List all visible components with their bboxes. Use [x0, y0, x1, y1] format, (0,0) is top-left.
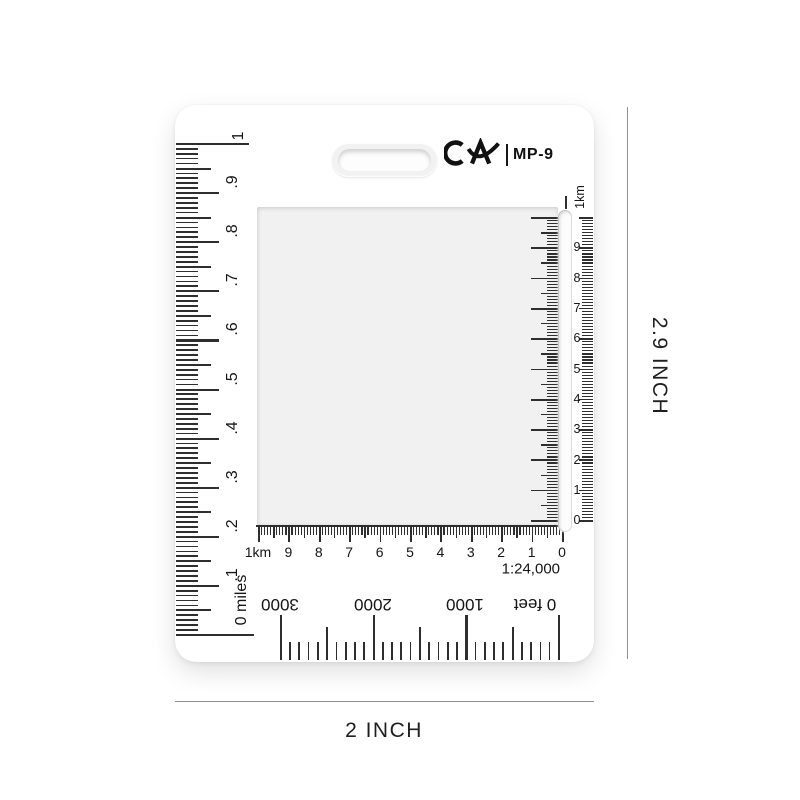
tick	[547, 275, 558, 276]
tick	[582, 272, 593, 273]
tick	[547, 372, 558, 373]
tick	[547, 332, 558, 333]
width-dimension-line	[175, 701, 594, 702]
tick	[547, 359, 558, 360]
tick	[547, 241, 558, 242]
tick	[531, 459, 558, 461]
tick	[582, 514, 593, 515]
tick	[582, 405, 593, 406]
tick	[547, 417, 558, 418]
ruler-label: 6	[574, 331, 581, 345]
tick	[547, 266, 558, 267]
tick	[547, 426, 558, 427]
tick	[541, 293, 558, 294]
tick	[579, 520, 593, 522]
tick	[547, 502, 558, 503]
tick	[547, 311, 558, 312]
tick	[547, 302, 558, 303]
tick	[531, 338, 558, 340]
tick	[579, 308, 593, 310]
tick	[541, 414, 558, 415]
tick	[547, 335, 558, 336]
tick	[582, 378, 593, 379]
tick	[582, 384, 593, 385]
tick	[547, 402, 558, 403]
tick	[582, 499, 593, 500]
tick	[541, 444, 558, 445]
tick	[582, 408, 593, 409]
tick	[579, 459, 593, 461]
tick	[547, 472, 558, 473]
height-dimension-label: 2.9 INCH	[647, 317, 671, 415]
tick	[547, 356, 558, 357]
tick	[582, 341, 593, 342]
tick	[582, 402, 593, 403]
tick	[582, 438, 593, 439]
tick	[582, 466, 593, 467]
tick	[582, 305, 593, 306]
tick	[531, 369, 558, 371]
tick	[547, 290, 558, 291]
tick	[579, 490, 593, 492]
tick	[547, 226, 558, 227]
tick	[582, 281, 593, 282]
tick	[547, 496, 558, 497]
tick	[582, 426, 593, 427]
tick	[579, 399, 593, 401]
tick	[582, 347, 593, 348]
tick	[547, 375, 558, 376]
tick	[547, 344, 558, 345]
tick	[582, 469, 593, 470]
tick	[582, 372, 593, 373]
tick	[547, 305, 558, 306]
tick	[582, 329, 593, 330]
tick	[547, 341, 558, 342]
tick	[582, 393, 593, 394]
ruler-label: 9	[574, 240, 581, 254]
tick	[582, 387, 593, 388]
ruler-label: 7	[574, 301, 581, 315]
tick	[582, 517, 593, 518]
tick	[547, 390, 558, 391]
tick	[582, 375, 593, 376]
tick	[547, 378, 558, 379]
tick	[541, 353, 558, 354]
tick	[547, 487, 558, 488]
tick	[582, 381, 593, 382]
tick	[547, 493, 558, 494]
ruler-label: 3	[574, 422, 581, 436]
tick	[582, 220, 593, 221]
tick	[579, 429, 593, 431]
tick	[582, 417, 593, 418]
tick	[579, 217, 593, 219]
tick	[582, 456, 593, 457]
tick	[582, 475, 593, 476]
tick	[547, 317, 558, 318]
tick	[547, 253, 558, 254]
tick	[582, 344, 593, 345]
width-dimension-label: 2 INCH	[345, 719, 423, 743]
tick	[547, 259, 558, 260]
tick	[547, 314, 558, 315]
tick	[547, 299, 558, 300]
tick	[531, 399, 558, 401]
tick	[579, 247, 593, 249]
tick	[582, 359, 593, 360]
tick	[582, 435, 593, 436]
tick	[582, 266, 593, 267]
tick	[582, 396, 593, 397]
tick	[582, 284, 593, 285]
tick	[547, 281, 558, 282]
tick	[547, 223, 558, 224]
tick	[582, 414, 593, 415]
tick	[541, 232, 558, 233]
tick	[547, 405, 558, 406]
height-dimension-line	[627, 107, 628, 659]
tick	[582, 508, 593, 509]
tick	[547, 478, 558, 479]
tick	[547, 484, 558, 485]
tick	[547, 447, 558, 448]
tick	[547, 284, 558, 285]
ruler-card: MP-9 1.9.8.7.6.5.4.3.2.10 miles 30002000…	[175, 105, 594, 662]
ruler-label: 5	[574, 362, 581, 376]
tick	[582, 253, 593, 254]
tick	[547, 499, 558, 500]
tick	[582, 311, 593, 312]
tick	[582, 244, 593, 245]
tick	[582, 478, 593, 479]
ruler-label: 2	[574, 453, 581, 467]
tick	[547, 347, 558, 348]
tick	[547, 362, 558, 363]
tick	[547, 220, 558, 221]
tick	[547, 511, 558, 512]
tick	[541, 323, 558, 324]
tick	[579, 338, 593, 340]
tick	[541, 262, 558, 263]
tick	[547, 229, 558, 230]
tick	[547, 256, 558, 257]
tick	[582, 472, 593, 473]
tick	[547, 235, 558, 236]
tick	[582, 496, 593, 497]
tick	[582, 232, 593, 233]
tick	[582, 502, 593, 503]
tick	[582, 320, 593, 321]
tick	[582, 450, 593, 451]
tick	[582, 487, 593, 488]
tick	[547, 481, 558, 482]
tick	[547, 381, 558, 382]
ruler-label: 1	[574, 483, 581, 497]
tick	[547, 272, 558, 273]
tick	[582, 493, 593, 494]
tick	[531, 308, 558, 310]
tick	[531, 429, 558, 431]
tick	[582, 323, 593, 324]
tick	[582, 432, 593, 433]
tick	[582, 505, 593, 506]
tick	[579, 369, 593, 371]
tick	[582, 462, 593, 463]
tick	[547, 408, 558, 409]
tick	[582, 229, 593, 230]
tick	[582, 444, 593, 445]
tick	[547, 244, 558, 245]
tick	[582, 235, 593, 236]
product-image-stage: MP-9 1.9.8.7.6.5.4.3.2.10 miles 30002000…	[0, 0, 800, 800]
tick	[547, 462, 558, 463]
tick	[547, 453, 558, 454]
tick	[531, 490, 558, 492]
tick	[547, 450, 558, 451]
tick	[582, 411, 593, 412]
tick	[582, 262, 593, 263]
tick	[541, 475, 558, 476]
tick	[582, 256, 593, 257]
tick	[541, 384, 558, 385]
tick	[547, 423, 558, 424]
tick	[582, 223, 593, 224]
tick	[547, 393, 558, 394]
tick	[547, 456, 558, 457]
tick	[547, 387, 558, 388]
tick	[582, 314, 593, 315]
tick	[582, 259, 593, 260]
tick	[582, 238, 593, 239]
tick	[547, 441, 558, 442]
km-vertical-ruler: 1km9876543210	[175, 105, 594, 662]
tick	[541, 505, 558, 506]
tick	[531, 520, 558, 522]
tick	[582, 335, 593, 336]
tick	[582, 332, 593, 333]
tick	[582, 511, 593, 512]
tick	[582, 420, 593, 421]
tick	[547, 420, 558, 421]
ruler-label: 0	[574, 513, 581, 527]
tick	[547, 320, 558, 321]
tick	[547, 269, 558, 270]
tick	[582, 447, 593, 448]
tick	[582, 481, 593, 482]
tick	[547, 350, 558, 351]
tick	[547, 326, 558, 327]
tick	[547, 411, 558, 412]
tick	[547, 366, 558, 367]
tick	[547, 438, 558, 439]
tick	[547, 435, 558, 436]
tick	[582, 287, 593, 288]
tick	[547, 469, 558, 470]
tick	[547, 287, 558, 288]
tick	[582, 302, 593, 303]
tick	[547, 508, 558, 509]
tick	[547, 396, 558, 397]
tick	[582, 390, 593, 391]
ruler-label: 4	[574, 392, 581, 406]
tick	[547, 238, 558, 239]
tick	[547, 329, 558, 330]
tick	[547, 432, 558, 433]
tick	[582, 317, 593, 318]
tick	[582, 250, 593, 251]
tick	[582, 484, 593, 485]
ruler-label: 8	[574, 271, 581, 285]
tick	[582, 241, 593, 242]
tick	[582, 356, 593, 357]
tick	[582, 226, 593, 227]
tick	[582, 353, 593, 354]
tick	[582, 293, 593, 294]
ruler-label: 1km	[573, 185, 587, 209]
tick	[547, 514, 558, 515]
tick	[582, 275, 593, 276]
tick	[531, 278, 558, 280]
tick	[582, 299, 593, 300]
tick	[582, 441, 593, 442]
vertical-slot	[558, 210, 572, 532]
tick	[582, 290, 593, 291]
tick	[582, 423, 593, 424]
tick	[582, 362, 593, 363]
tick	[579, 278, 593, 280]
tick	[531, 217, 558, 219]
tick	[547, 517, 558, 518]
scale-ratio-label: 1:24,000	[502, 561, 560, 578]
tick	[582, 366, 593, 367]
tick	[547, 296, 558, 297]
tick	[547, 250, 558, 251]
tick	[582, 326, 593, 327]
tick	[547, 466, 558, 467]
tick	[582, 269, 593, 270]
tick	[582, 453, 593, 454]
tick	[582, 296, 593, 297]
tick	[565, 196, 567, 209]
tick	[531, 247, 558, 249]
tick	[582, 350, 593, 351]
